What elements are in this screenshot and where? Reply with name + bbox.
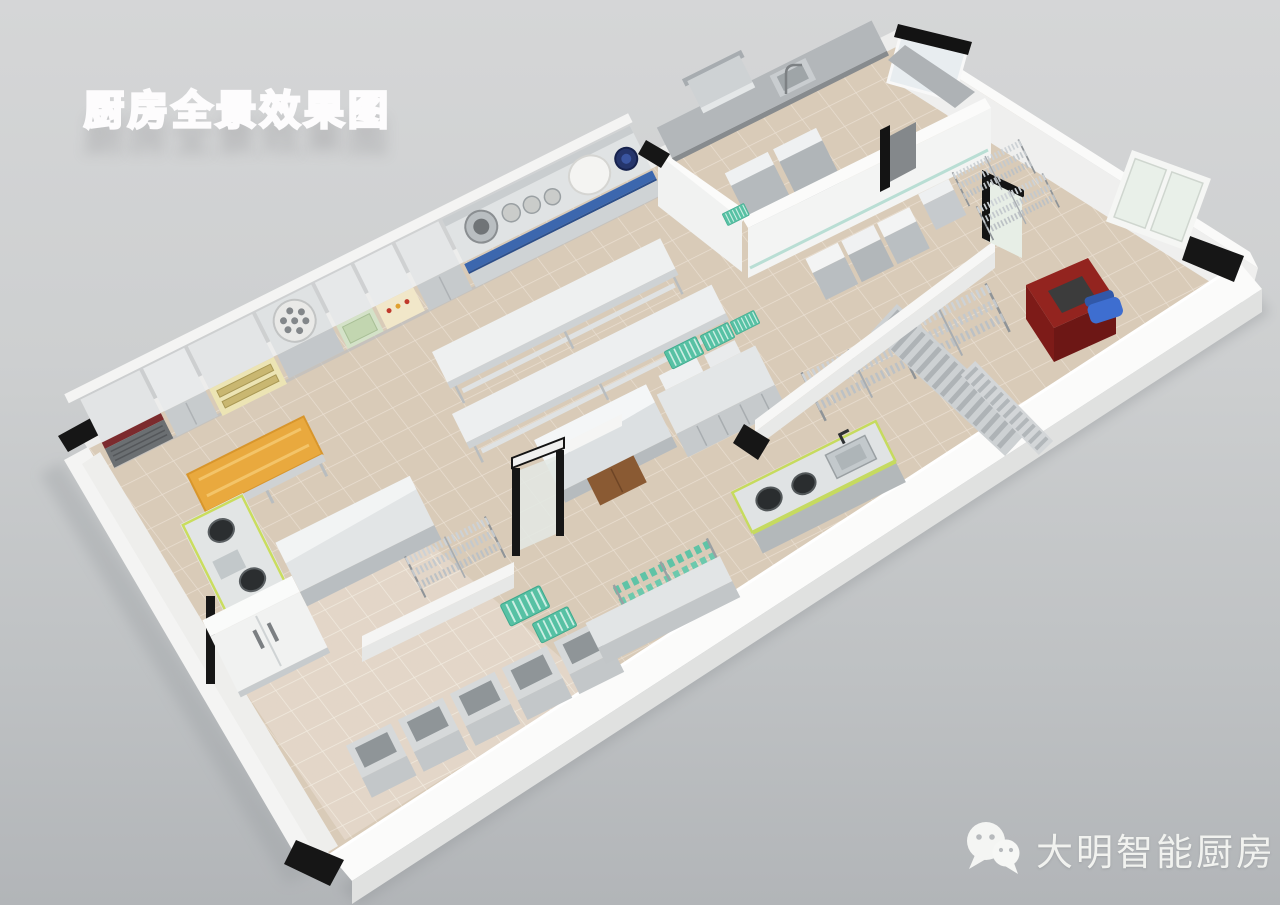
wechat-watermark: 大明智能厨房: [962, 820, 1276, 878]
watermark-text: 大明智能厨房: [1036, 822, 1276, 876]
screenshot-canvas: 厨房全景效果图 大明智能厨房: [0, 0, 1280, 905]
wechat-icon: [962, 820, 1026, 878]
render-title: 厨房全景效果图: [84, 78, 392, 136]
